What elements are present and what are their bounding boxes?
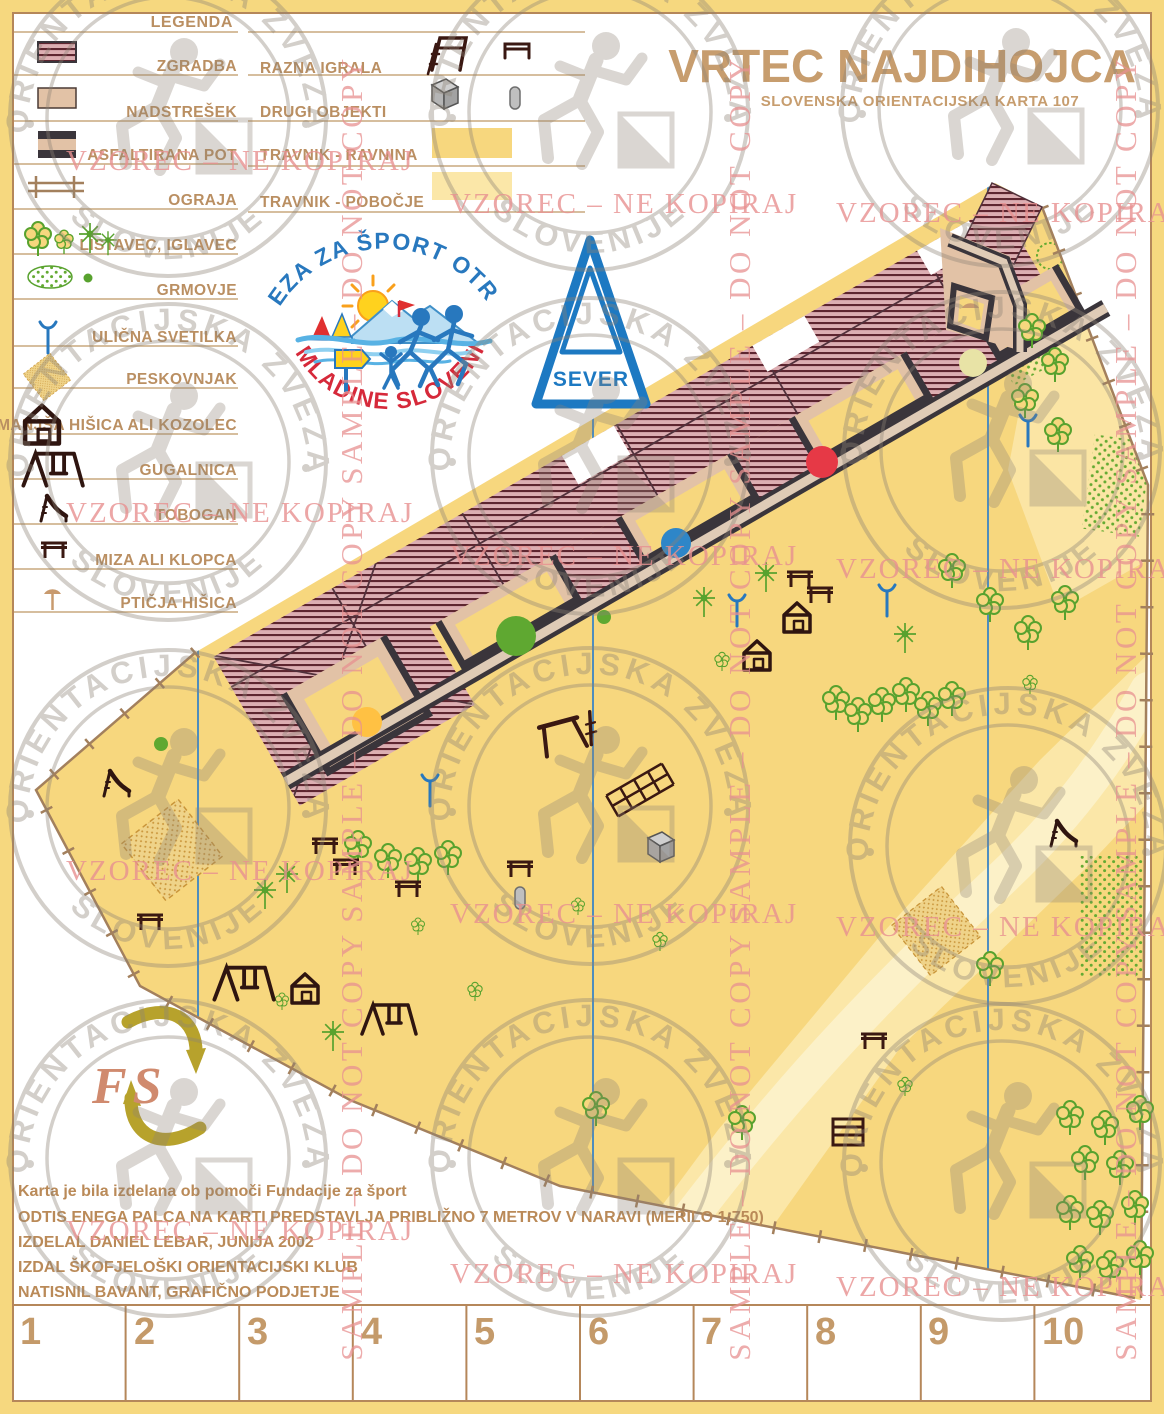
- svg-text:10: 10: [1042, 1311, 1084, 1353]
- canopy-swatch: [38, 88, 76, 108]
- svg-text:OGRAJA: OGRAJA: [168, 192, 237, 209]
- map-sheet: ORIENTACIJSKA ZVEZA SLOVENIJE VZOREC – N…: [0, 0, 1164, 1414]
- shrub-dot: [154, 737, 168, 751]
- orienteering-map-canvas: ORIENTACIJSKA ZVEZA SLOVENIJE VZOREC – N…: [0, 0, 1164, 1414]
- khaki-point-marker: [959, 349, 987, 377]
- svg-text:8: 8: [815, 1311, 836, 1353]
- large-shrub-dot: [496, 616, 536, 656]
- svg-text:5: 5: [474, 1311, 495, 1353]
- svg-text:3: 3: [247, 1311, 268, 1353]
- svg-text:9: 9: [928, 1311, 949, 1353]
- svg-text:GRMOVJE: GRMOVJE: [157, 282, 237, 299]
- svg-text:7: 7: [701, 1311, 722, 1353]
- svg-text:1: 1: [20, 1311, 41, 1353]
- fs-logo-text: FS: [91, 1058, 168, 1115]
- page-subtitle: SLOVENSKA ORIENTACIJSKA KARTA 107: [761, 93, 1080, 110]
- legend-heading: LEGENDA: [151, 14, 233, 31]
- red-point-marker: [806, 446, 838, 478]
- svg-text:2: 2: [134, 1311, 155, 1353]
